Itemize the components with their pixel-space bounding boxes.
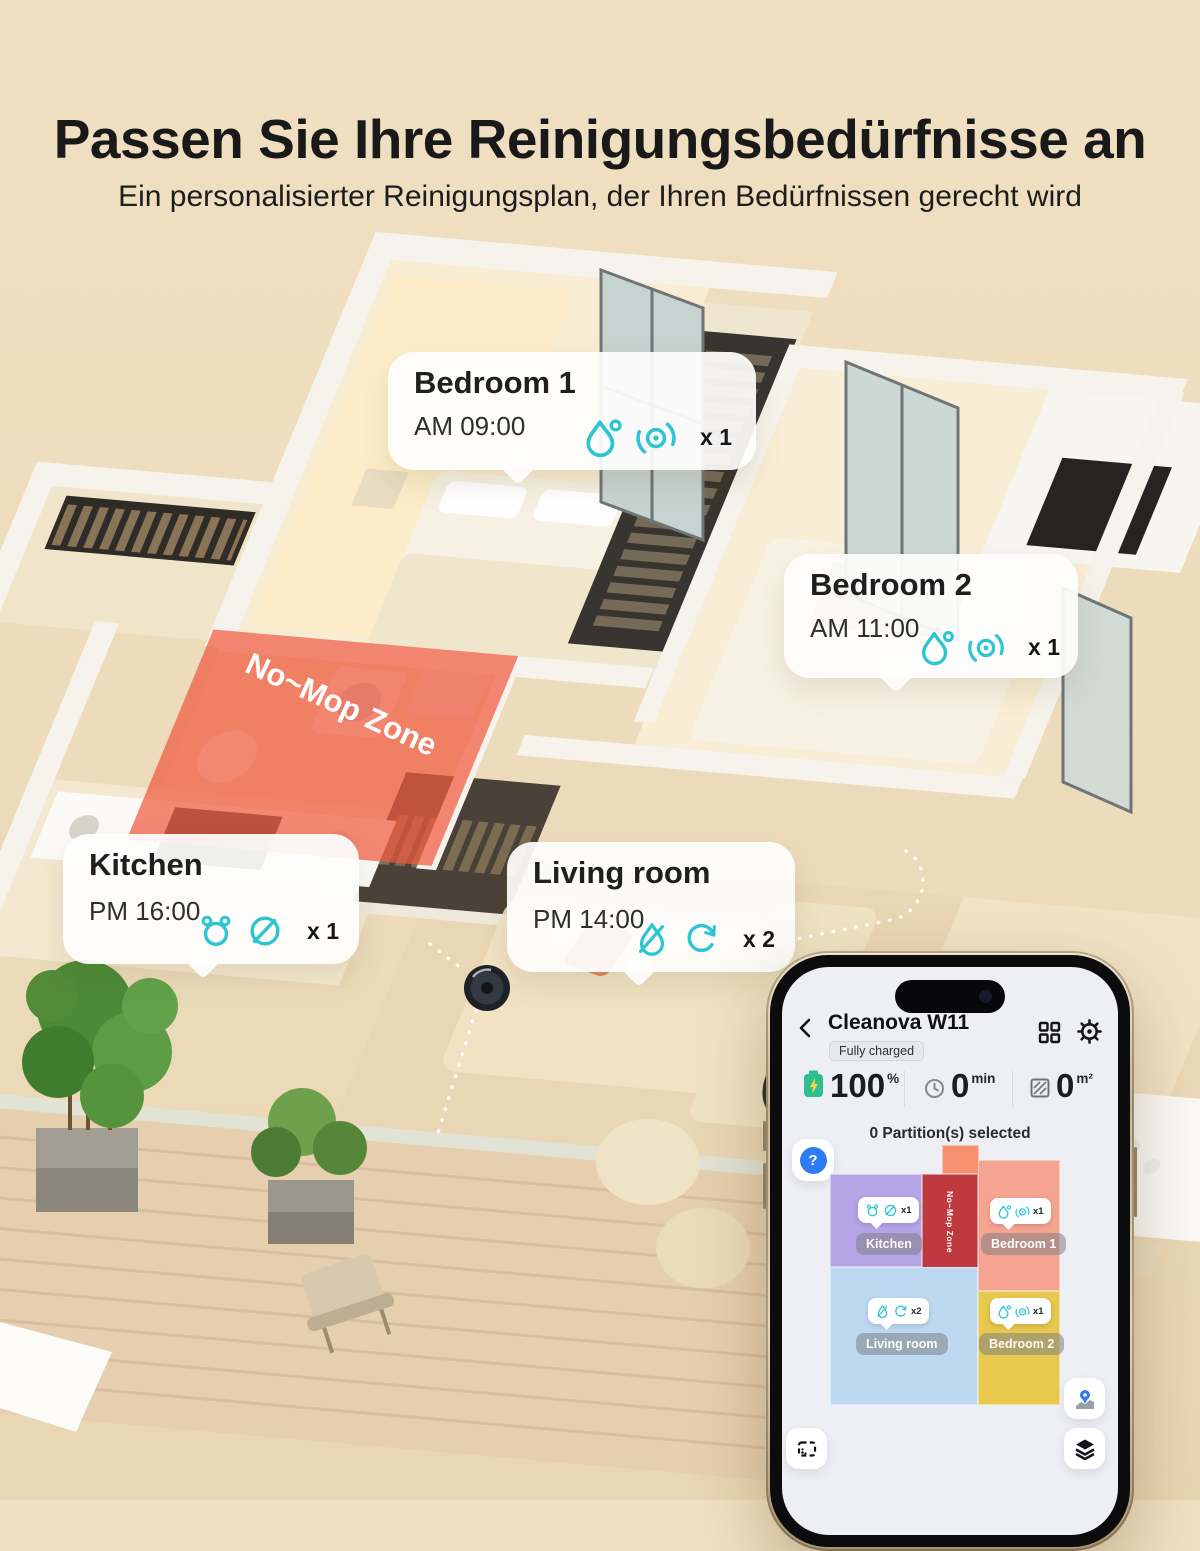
dynamic-island <box>895 980 1005 1013</box>
camera-dot <box>979 990 992 1003</box>
no-mop-icon <box>246 912 284 950</box>
phone-side-button[interactable] <box>763 1121 766 1151</box>
room-label: Bedroom 1 <box>981 1233 1066 1255</box>
room-pill-bedroom2[interactable]: x1 <box>990 1298 1051 1324</box>
room-label: Kitchen <box>856 1233 922 1255</box>
callout-living-room: Living room PM 14:00 x 2 <box>507 842 795 972</box>
callout-title: Bedroom 2 <box>810 567 972 603</box>
alarm-drops-icon <box>197 912 235 950</box>
robot-vacuum <box>464 965 510 1011</box>
area-stat: 0 m² <box>1030 1069 1093 1102</box>
no-mop-icon <box>883 1203 898 1218</box>
callout-time: PM 14:00 <box>533 904 644 935</box>
stat-divider <box>904 1071 905 1107</box>
layers-icon <box>1073 1437 1097 1461</box>
water-drop-icon <box>997 1304 1012 1319</box>
callout-count: x 1 <box>1028 634 1060 661</box>
room-pill-kitchen[interactable]: x1 <box>858 1197 919 1223</box>
callout-title: Living room <box>533 855 710 891</box>
layers-button[interactable] <box>1064 1428 1105 1469</box>
callout-bedroom1: Bedroom 1 AM 09:00 x 1 <box>388 352 756 470</box>
callout-time: PM 16:00 <box>89 896 200 927</box>
phone-mockup: Cleanova W11 Fully charged <box>766 951 1134 1551</box>
callout-title: Bedroom 1 <box>414 365 576 401</box>
room-label: Living room <box>856 1333 948 1355</box>
water-drop-icon <box>918 628 956 666</box>
settings-gear-icon[interactable] <box>1076 1018 1103 1045</box>
room-pill-living[interactable]: x2 <box>868 1298 929 1324</box>
app-screen: Cleanova W11 Fully charged <box>782 967 1118 1535</box>
mop-disc-icon <box>635 416 677 458</box>
spin-icon <box>893 1304 908 1319</box>
callout-kitchen: Kitchen PM 16:00 x 1 <box>63 834 359 964</box>
alarm-drops-icon <box>865 1203 880 1218</box>
device-title: Cleanova W11 <box>828 1011 969 1035</box>
callout-time: AM 09:00 <box>414 411 525 442</box>
selection-status: 0 Partition(s) selected <box>782 1125 1118 1143</box>
select-area-icon <box>796 1438 818 1460</box>
phone-side-button[interactable] <box>763 1163 766 1209</box>
map-no-mop-label: No~Mop Zone <box>945 1191 955 1253</box>
callout-count: x 1 <box>700 424 732 451</box>
armchair <box>656 1208 750 1288</box>
map-zone-extension[interactable] <box>942 1145 979 1174</box>
battery-icon <box>802 1069 825 1099</box>
spin-icon <box>682 920 720 958</box>
status-badge: Fully charged <box>829 1041 924 1061</box>
stat-divider <box>1012 1071 1013 1107</box>
area-icon <box>1030 1078 1050 1098</box>
battery-stat: 100 % <box>802 1069 899 1102</box>
callout-bedroom2: Bedroom 2 AM 11:00 x 1 <box>784 554 1078 678</box>
help-icon: ? <box>800 1147 827 1174</box>
clock-icon <box>924 1078 945 1099</box>
back-button[interactable] <box>796 1016 816 1040</box>
mop-disc-icon <box>1015 1204 1030 1219</box>
room-label: Bedroom 2 <box>979 1333 1064 1355</box>
callout-time: AM 11:00 <box>810 613 919 644</box>
callout-count: x 1 <box>307 918 339 945</box>
no-water-icon <box>633 920 671 958</box>
water-drop-icon <box>997 1204 1012 1219</box>
grid-view-icon[interactable] <box>1038 1021 1061 1044</box>
mop-disc-icon <box>1015 1304 1030 1319</box>
armchair <box>596 1119 700 1205</box>
map-no-mop-zone[interactable]: No~Mop Zone <box>922 1174 978 1269</box>
phone-side-button[interactable] <box>1134 1147 1137 1217</box>
no-water-icon <box>875 1304 890 1319</box>
mop-disc-icon <box>967 628 1005 666</box>
runtime-stat: 0 min <box>924 1069 995 1102</box>
map-pin-icon <box>1073 1387 1097 1411</box>
callout-count: x 2 <box>743 926 775 953</box>
water-drop-icon <box>582 416 624 458</box>
map-room-bedroom1[interactable] <box>978 1160 1060 1291</box>
select-area-button[interactable] <box>786 1428 827 1469</box>
callout-title: Kitchen <box>89 847 203 883</box>
locate-button[interactable] <box>1064 1378 1105 1419</box>
room-pill-bedroom1[interactable]: x1 <box>990 1198 1051 1224</box>
help-button[interactable]: ? <box>792 1139 834 1181</box>
